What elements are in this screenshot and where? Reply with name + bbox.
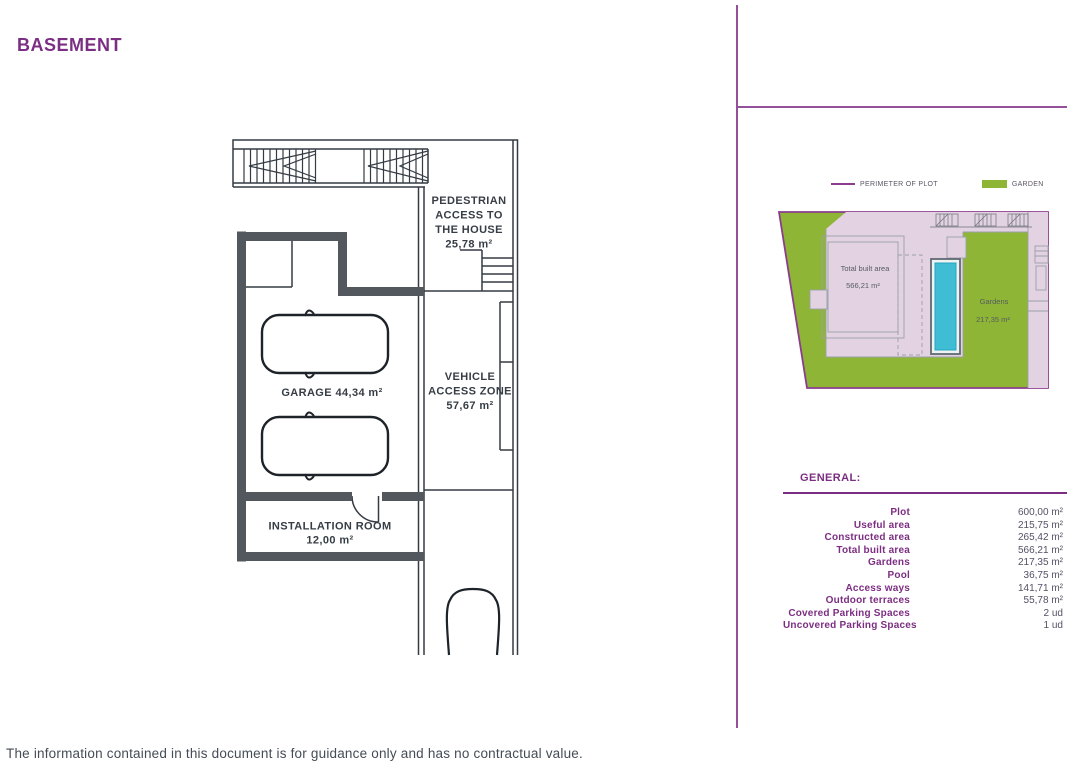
pool (931, 259, 960, 354)
stair-hatching (244, 149, 428, 183)
garden-label: GARDEN (1012, 181, 1044, 188)
horizontal-divider (737, 106, 1067, 108)
row-value: 566,21 m² (910, 545, 1063, 558)
table-row: Plot600,00 m² (783, 507, 1063, 520)
row-label: Pool (783, 570, 910, 583)
row-label: Gardens (783, 557, 910, 570)
garage-car-1 (262, 310, 388, 377)
garden-swatch (982, 180, 1007, 188)
general-heading: GENERAL: (783, 472, 1067, 484)
site-plan: Total built area 566,21 m² Gardens 217,3… (773, 203, 1055, 395)
site-plan-legend: PERIMETER OF PLOT GARDEN (831, 178, 1044, 190)
installation-room-area: 12,00 m² (306, 535, 353, 547)
installation-room-label: INSTALLATION ROOM (268, 521, 391, 533)
row-label: Access ways (783, 583, 910, 596)
table-row: Useful area215,75 m² (783, 520, 1063, 533)
row-label: Uncovered Parking Spaces (783, 620, 910, 633)
row-label: Constructed area (783, 532, 910, 545)
table-row: Outdoor terraces55,78 m² (783, 595, 1063, 608)
row-value: 265,42 m² (910, 532, 1063, 545)
vertical-divider (736, 5, 738, 728)
table-row: Total built area566,21 m² (783, 545, 1063, 558)
pedestrian-access-label-2: ACCESS TO (435, 210, 503, 222)
row-value: 55,78 m² (910, 595, 1063, 608)
row-label: Plot (783, 507, 910, 520)
page-title: BASEMENT (17, 35, 122, 56)
perimeter-of-plot-label: PERIMETER OF PLOT (860, 181, 938, 188)
pedestrian-access-label-3: THE HOUSE (435, 224, 503, 236)
row-value: 1 ud (910, 620, 1063, 633)
row-value: 217,35 m² (910, 557, 1063, 570)
vehicle-access-label-2: ACCESS ZONE (428, 386, 512, 398)
row-value: 215,75 m² (910, 520, 1063, 533)
pedestrian-access-area: 25,78 m² (445, 239, 492, 251)
table-row: Access ways141,71 m² (783, 583, 1063, 596)
general-section: GENERAL: Plot600,00 m² Useful area215,75… (783, 472, 1067, 633)
table-row: Covered Parking Spaces2 ud (783, 608, 1063, 621)
document-page: BASEMENT (0, 0, 1080, 768)
gardens-value: 217,35 m² (976, 315, 1010, 324)
table-row: Constructed area265,42 m² (783, 532, 1063, 545)
perimeter-of-plot-swatch (831, 183, 855, 185)
row-label: Total built area (783, 545, 910, 558)
lane-car (447, 589, 499, 655)
general-rule (783, 492, 1067, 494)
garage-car-2 (262, 412, 388, 479)
total-built-area-label: Total built area (841, 264, 891, 273)
row-value: 141,71 m² (910, 583, 1063, 596)
disclaimer-text: The information contained in this docume… (6, 746, 583, 761)
general-table: Plot600,00 m² Useful area215,75 m² Const… (783, 507, 1063, 633)
table-row: Uncovered Parking Spaces1 ud (783, 620, 1063, 633)
row-value: 2 ud (910, 608, 1063, 621)
row-label: Covered Parking Spaces (783, 608, 910, 621)
row-value: 36,75 m² (910, 570, 1063, 583)
table-row: Gardens217,35 m² (783, 557, 1063, 570)
vehicle-access-area: 57,67 m² (446, 400, 493, 412)
row-value: 600,00 m² (910, 507, 1063, 520)
garage-label: GARAGE 44,34 m² (281, 387, 382, 399)
vehicle-access-label: VEHICLE (445, 371, 495, 383)
table-row: Pool36,75 m² (783, 570, 1063, 583)
row-label: Useful area (783, 520, 910, 533)
row-label: Outdoor terraces (783, 595, 910, 608)
gardens-label: Gardens (980, 297, 1009, 306)
total-built-area-value: 566,21 m² (846, 281, 880, 290)
pedestrian-access-label: PEDESTRIAN (432, 195, 507, 207)
basement-floor-plan: PEDESTRIAN ACCESS TO THE HOUSE 25,78 m² … (228, 135, 522, 661)
